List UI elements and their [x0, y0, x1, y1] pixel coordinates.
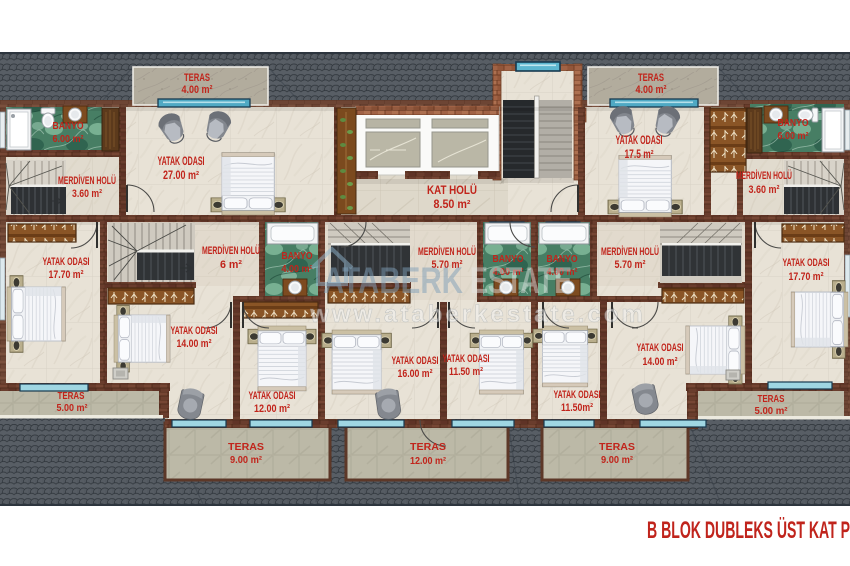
svg-text:12.00 m²: 12.00 m² — [254, 403, 290, 415]
svg-text:YATAK ODASI: YATAK ODASI — [43, 256, 90, 268]
svg-text:MERDİVEN HOLÜ: MERDİVEN HOLÜ — [202, 244, 260, 257]
svg-text:17.5 m²: 17.5 m² — [625, 149, 654, 161]
svg-text:MERDİVEN HOLÜ: MERDİVEN HOLÜ — [736, 169, 792, 182]
svg-text:5.00 m²: 5.00 m² — [755, 405, 788, 417]
svg-text:B BLOK DUBLEKS ÜST KAT PLANI: B BLOK DUBLEKS ÜST KAT PLANI — [647, 516, 850, 544]
svg-text:YATAK ODASI: YATAK ODASI — [249, 390, 296, 402]
svg-text:YATAK ODASI: YATAK ODASI — [171, 325, 218, 337]
svg-text:BANYO: BANYO — [53, 120, 84, 132]
svg-text:TERAS: TERAS — [184, 72, 210, 84]
svg-text:ESTATE: ESTATE — [470, 260, 572, 301]
svg-text:TERAS: TERAS — [638, 72, 664, 84]
svg-text:TERAS: TERAS — [228, 441, 264, 453]
svg-text:3.60 m²: 3.60 m² — [749, 184, 780, 196]
svg-text:4.00 m²: 4.00 m² — [282, 264, 314, 275]
svg-text:5.70 m²: 5.70 m² — [615, 259, 646, 271]
svg-text:KAT HOLÜ: KAT HOLÜ — [427, 184, 477, 197]
svg-text:4.00 m²: 4.00 m² — [182, 84, 213, 96]
svg-text:YATAK ODASI: YATAK ODASI — [443, 353, 490, 365]
svg-text:YATAK ODASI: YATAK ODASI — [616, 135, 663, 147]
svg-text:MERDİVEN HOLÜ: MERDİVEN HOLÜ — [418, 245, 476, 258]
svg-text:17.70 m²: 17.70 m² — [789, 271, 824, 283]
svg-text:9.00 m²: 9.00 m² — [230, 454, 262, 466]
svg-text:TERAS: TERAS — [758, 393, 785, 405]
svg-text:27.00 m²: 27.00 m² — [163, 170, 199, 182]
svg-text:6 m²: 6 m² — [220, 259, 242, 271]
svg-text:BANYO: BANYO — [282, 251, 313, 262]
svg-text:14.00 m²: 14.00 m² — [643, 356, 678, 368]
svg-text:www.ataberkestate.com: www.ataberkestate.com — [309, 301, 646, 328]
svg-text:16.00 m²: 16.00 m² — [398, 368, 433, 380]
svg-text:5.00 m²: 5.00 m² — [57, 402, 88, 414]
svg-text:TERAS: TERAS — [410, 441, 446, 453]
svg-text:8.50 m²: 8.50 m² — [434, 199, 471, 211]
svg-text:9.00 m²: 9.00 m² — [601, 454, 633, 466]
svg-text:12.00 m²: 12.00 m² — [410, 455, 446, 467]
svg-text:3.60 m²: 3.60 m² — [72, 188, 102, 200]
svg-text:4.00 m²: 4.00 m² — [636, 84, 667, 96]
svg-text:6.00 m²: 6.00 m² — [778, 130, 809, 142]
svg-text:11.50m²: 11.50m² — [561, 402, 593, 414]
svg-text:YATAK ODASI: YATAK ODASI — [783, 257, 830, 269]
svg-text:YATAK ODASI: YATAK ODASI — [637, 342, 684, 354]
svg-text:14.00 m²: 14.00 m² — [177, 338, 212, 350]
svg-text:YATAK ODASI: YATAK ODASI — [554, 389, 601, 401]
svg-text:BANYO: BANYO — [778, 117, 809, 129]
svg-text:MERDİVEN HOLÜ: MERDİVEN HOLÜ — [601, 245, 659, 258]
svg-text:TERAS: TERAS — [58, 390, 85, 402]
svg-text:YATAK ODASI: YATAK ODASI — [158, 156, 205, 168]
svg-text:6.00 m²: 6.00 m² — [53, 133, 84, 145]
svg-text:ATABERK: ATABERK — [323, 260, 463, 301]
svg-text:MERDİVEN HOLÜ: MERDİVEN HOLÜ — [58, 174, 116, 187]
svg-text:YATAK ODASI: YATAK ODASI — [392, 355, 439, 367]
svg-text:TERAS: TERAS — [599, 441, 635, 453]
svg-text:17.70 m²: 17.70 m² — [49, 269, 84, 281]
svg-text:11.50 m²: 11.50 m² — [449, 366, 483, 378]
